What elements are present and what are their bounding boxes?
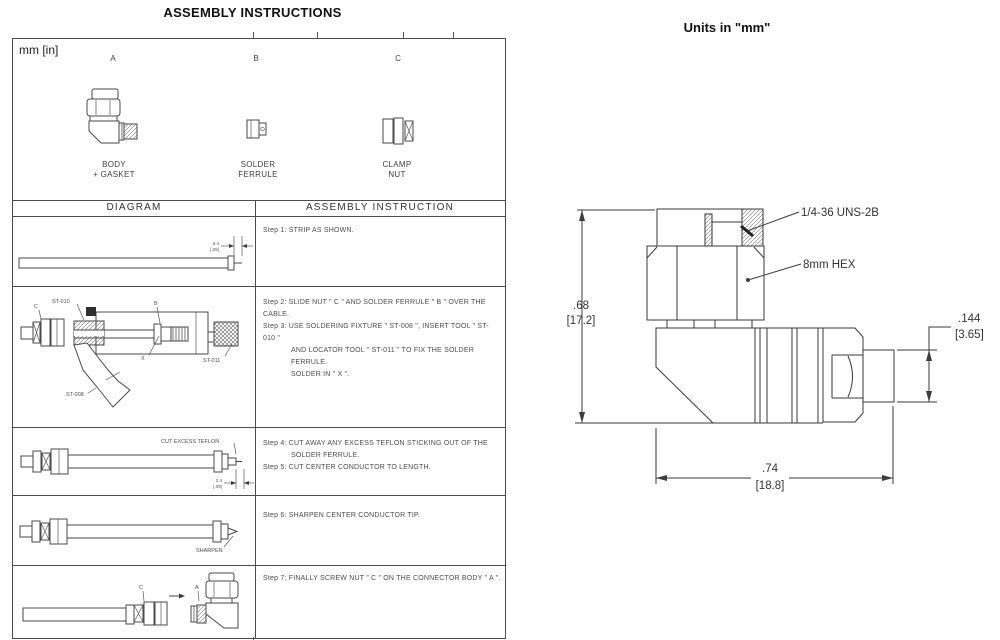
assembly-table: mm [in] A B C bbox=[12, 38, 506, 639]
cut-teflon-label: CUT EXCESS TEFLON bbox=[161, 439, 219, 445]
step4-5-diagram: CUT EXCESS TEFLON 2.4 [.09] bbox=[13, 427, 255, 495]
body-section bbox=[656, 328, 894, 423]
ferrule-b-label: B bbox=[154, 301, 158, 307]
nut-top-section bbox=[647, 209, 764, 328]
thread-label: 1/4-36 UNS-2B bbox=[801, 207, 879, 219]
dim-pin-in: .144 bbox=[958, 313, 981, 325]
table-divider bbox=[13, 200, 505, 201]
cut-dim-in: [.09] bbox=[213, 484, 222, 489]
sharpen-label: SHARPEN bbox=[196, 548, 223, 554]
page: ASSEMBLY INSTRUCTIONS Units in "mm" mm [… bbox=[0, 0, 1000, 640]
step7-diagram: C A bbox=[13, 565, 255, 638]
body-gasket-drawing bbox=[87, 89, 137, 143]
solder-ferrule-drawing bbox=[247, 120, 266, 138]
strip-dim-mm: 6.4 bbox=[213, 241, 220, 246]
nut-c-label: C bbox=[139, 585, 143, 591]
st008-label: ST-008 bbox=[66, 392, 84, 398]
page-title: ASSEMBLY INSTRUCTIONS bbox=[0, 5, 505, 20]
connector-dimension-drawing: .68 [17.2] .74 [18.8] .144 [3.65] bbox=[545, 0, 1000, 640]
dim-length-mm: [18.8] bbox=[756, 480, 785, 492]
strip-dim-in: [.25] bbox=[210, 247, 219, 252]
cut-dim-mm: 2.4 bbox=[216, 478, 223, 483]
clamp-nut-drawing bbox=[383, 118, 413, 144]
dim-height-mm: [17.2] bbox=[567, 315, 596, 327]
step7-instruction: Step 7: FINALLY SCREW NUT " C " ON THE C… bbox=[263, 573, 501, 585]
connector-body-small bbox=[191, 573, 238, 628]
step1-instruction: Step 1: STRIP AS SHOWN. bbox=[263, 225, 501, 237]
step4-5-instruction: Step 4: CUT AWAY ANY EXCESS TEFLON STICK… bbox=[263, 438, 501, 474]
solder-x-label: X bbox=[141, 356, 145, 362]
dim-height-in: .68 bbox=[573, 300, 589, 312]
step1-diagram: 6.4 [.25] bbox=[13, 216, 255, 286]
step2-3-instruction: Step 2: SLIDE NUT " C " AND SOLDER FERRU… bbox=[263, 297, 501, 381]
dim-length-in: .74 bbox=[762, 463, 779, 475]
step6-instruction: Step 6: SHARPEN CENTER CONDUCTOR TIP. bbox=[263, 510, 501, 522]
solder-fixture bbox=[74, 307, 238, 407]
part-name-clamp-nut: CLAMP NUT bbox=[357, 160, 437, 180]
nut-c-label: C bbox=[34, 304, 38, 310]
diagram-column-header: DIAGRAM bbox=[13, 202, 255, 213]
step6-diagram: SHARPEN bbox=[13, 495, 255, 565]
cable-with-nut bbox=[21, 319, 64, 346]
body-a-label: A bbox=[195, 585, 199, 591]
column-divider bbox=[255, 200, 256, 638]
step2-3-diagram: C ST-010 B X ST-011 ST-008 bbox=[13, 286, 255, 427]
st011-label: ST-011 bbox=[203, 358, 220, 364]
dim-pin: .144 [3.65] bbox=[897, 313, 984, 402]
part-name-body-gasket: BODY + GASKET bbox=[74, 160, 154, 180]
instruction-column-header: ASSEMBLY INSTRUCTION bbox=[255, 202, 505, 213]
dim-pin-mm: [3.65] bbox=[955, 329, 984, 341]
part-name-solder-ferrule: SOLDER FERRULE bbox=[218, 160, 298, 180]
thread-callout: 1/4-36 UNS-2B bbox=[747, 207, 879, 231]
st010-label: ST-010 bbox=[52, 299, 70, 305]
hex-label: 8mm HEX bbox=[803, 259, 856, 271]
